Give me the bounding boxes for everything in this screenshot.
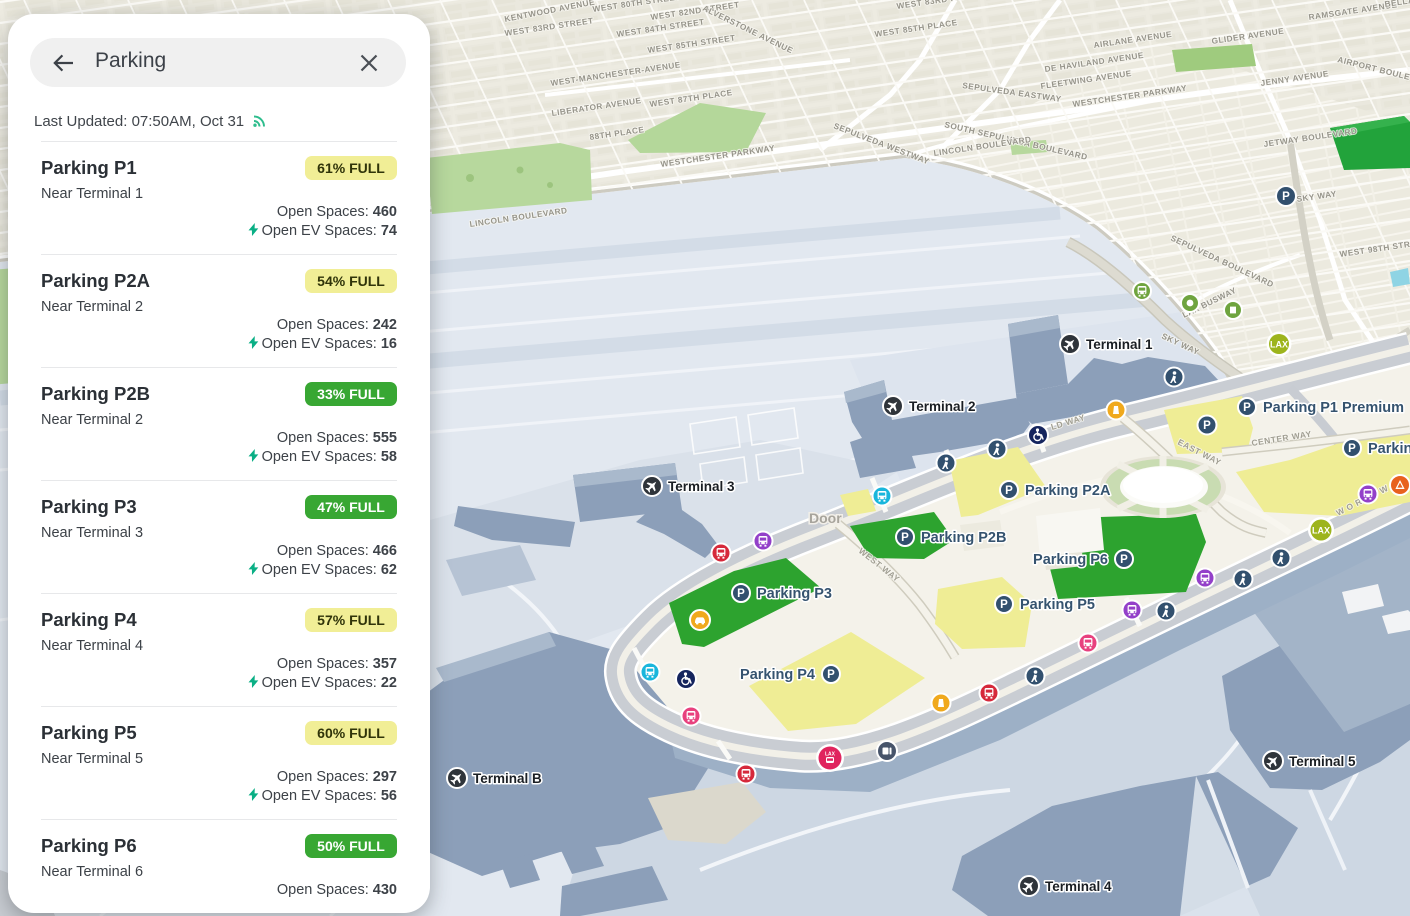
svg-text:Terminal B: Terminal B (473, 771, 542, 786)
svg-text:P: P (827, 669, 835, 681)
svg-text:Door: Door (809, 510, 842, 526)
svg-text:P: P (1005, 485, 1013, 497)
svg-text:LAX: LAX (1270, 339, 1288, 349)
svg-text:P: P (1282, 191, 1290, 203)
svg-text:P: P (901, 532, 909, 544)
svg-text:P: P (737, 588, 745, 600)
svg-text:Parking P3: Parking P3 (757, 586, 832, 602)
svg-text:Parking P6: Parking P6 (1033, 552, 1108, 568)
svg-text:Terminal 1: Terminal 1 (1086, 337, 1153, 352)
svg-text:P: P (1348, 443, 1356, 455)
svg-text:Parking P2A: Parking P2A (1025, 483, 1111, 499)
svg-text:Parking P5: Parking P5 (1020, 597, 1095, 613)
svg-text:P: P (1000, 599, 1008, 611)
svg-text:Terminal 4: Terminal 4 (1045, 879, 1112, 894)
svg-text:LAX: LAX (825, 752, 836, 758)
svg-text:P: P (1120, 554, 1128, 566)
svg-text:LAX: LAX (1312, 525, 1330, 535)
svg-text:Parking P4: Parking P4 (740, 667, 815, 683)
svg-text:Parking P1 Premium: Parking P1 Premium (1263, 400, 1404, 416)
svg-text:P: P (1243, 402, 1251, 414)
svg-text:Terminal 5: Terminal 5 (1289, 754, 1356, 769)
svg-text:P: P (1203, 420, 1211, 432)
svg-text:Terminal 3: Terminal 3 (668, 479, 735, 494)
svg-text:Terminal 2: Terminal 2 (909, 399, 976, 414)
svg-text:Parking P2B: Parking P2B (921, 530, 1006, 546)
svg-text:Parking: Parking (1368, 441, 1410, 457)
